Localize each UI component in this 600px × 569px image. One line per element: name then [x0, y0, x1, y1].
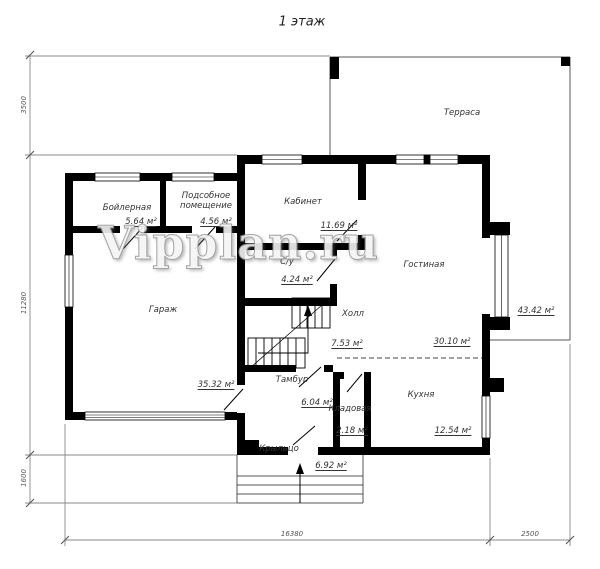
dimension-bottom-width: 16380: [281, 530, 303, 538]
room-area-kitchen: 12.54 м²: [435, 426, 472, 436]
room-name-vestibule: Тамбур: [276, 375, 308, 385]
room-name-hall: Холл: [342, 309, 364, 319]
dimension-left-top: 3500: [20, 96, 28, 114]
page-title: 1 этаж: [279, 15, 326, 30]
watermark-text: Vipplan.ru: [98, 216, 379, 270]
dimension-left-bottom: 1600: [20, 469, 28, 487]
dimension-left-middle: 11280: [20, 292, 28, 314]
room-name-living: Гостиная: [404, 260, 445, 270]
room-name-terrace: Терраса: [444, 108, 480, 118]
room-name-kitchen: Кухня: [408, 390, 435, 400]
staircase: [248, 298, 330, 368]
room-name-garage: Гараж: [149, 305, 177, 315]
room-name-study: Кабинет: [284, 197, 322, 207]
room-area-wc: 4.24 м²: [281, 275, 312, 285]
porch-direction-arrow: [296, 463, 304, 474]
room-area-hall: 7.53 м²: [331, 339, 362, 349]
room-name-utility: Подсобное помещение: [173, 192, 239, 212]
floor-plan-page: 1 этаж Vipplan.ru Бойлерная 5.64 м² Подс…: [0, 0, 600, 569]
room-area-terrace: 43.42 м²: [518, 306, 555, 316]
room-name-boiler: Бойлерная: [103, 203, 152, 213]
room-area-pantry: 2.18 м²: [336, 426, 367, 436]
room-area-living: 30.10 м²: [434, 337, 471, 347]
terrace-corner-posts: [330, 57, 570, 79]
room-area-garage: 35.32 м²: [198, 380, 235, 390]
room-area-porch: 6.92 м²: [315, 461, 346, 471]
dimension-bottom-right: 2500: [521, 530, 539, 538]
room-name-porch: Крыльцо: [259, 444, 299, 454]
room-name-pantry: Кладовая: [328, 404, 371, 414]
